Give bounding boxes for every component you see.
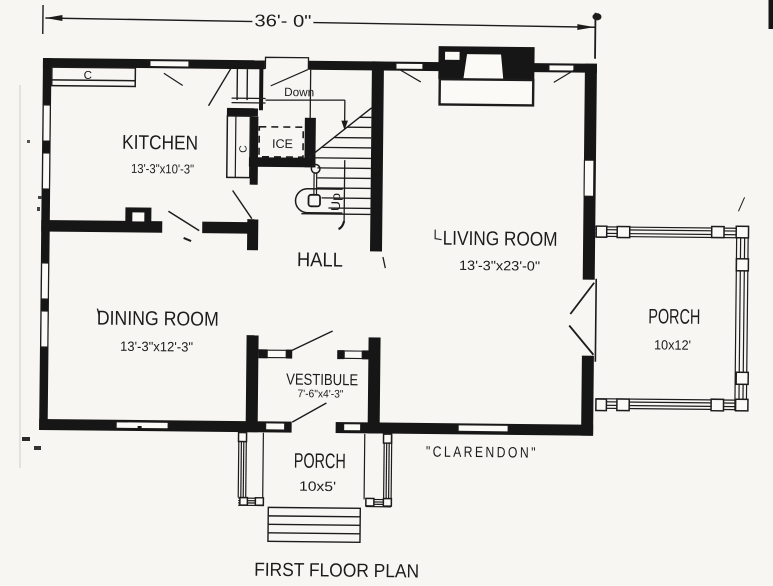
svg-text:C: C [84,70,92,82]
svg-text:Up: Up [329,193,343,211]
svg-text:ICE: ICE [272,137,293,151]
svg-text:KITCHEN: KITCHEN [122,132,198,155]
svg-text:36'- 0": 36'- 0" [254,11,311,31]
svg-text:7'-6"x4'-3": 7'-6"x4'-3" [297,388,343,400]
svg-text:LIVING ROOM: LIVING ROOM [443,228,558,251]
svg-text:HALL: HALL [297,249,343,271]
svg-text:13'-3"x23'-0": 13'-3"x23'-0" [459,258,540,274]
svg-text:13'-3"x12'-3": 13'-3"x12'-3" [120,339,193,355]
svg-text:DINING ROOM: DINING ROOM [97,308,219,331]
svg-text:10x5': 10x5' [299,479,336,494]
svg-text:Down: Down [284,85,314,99]
svg-text:FIRST FLOOR PLAN: FIRST FLOOR PLAN [254,560,419,583]
svg-text:PORCH: PORCH [294,450,346,474]
svg-text:13'-3"x10'-3": 13'-3"x10'-3" [131,161,194,177]
svg-text:"CLARENDON": "CLARENDON" [426,444,538,462]
svg-text:10x12': 10x12' [654,337,691,352]
svg-text:C: C [238,145,250,153]
svg-text:PORCH: PORCH [648,305,700,329]
svg-text:VESTIBULE: VESTIBULE [286,372,358,390]
